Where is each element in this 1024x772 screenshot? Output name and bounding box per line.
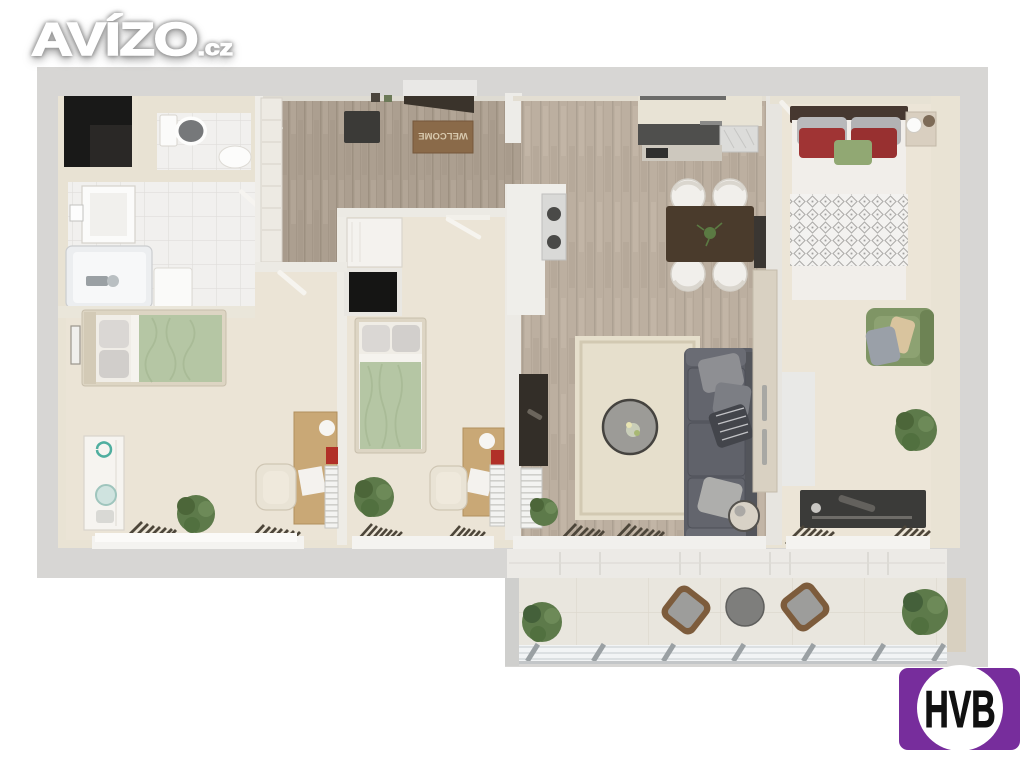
svg-text:WELCOME: WELCOME: [418, 130, 468, 141]
svg-text:HVB: HVB: [924, 681, 995, 739]
